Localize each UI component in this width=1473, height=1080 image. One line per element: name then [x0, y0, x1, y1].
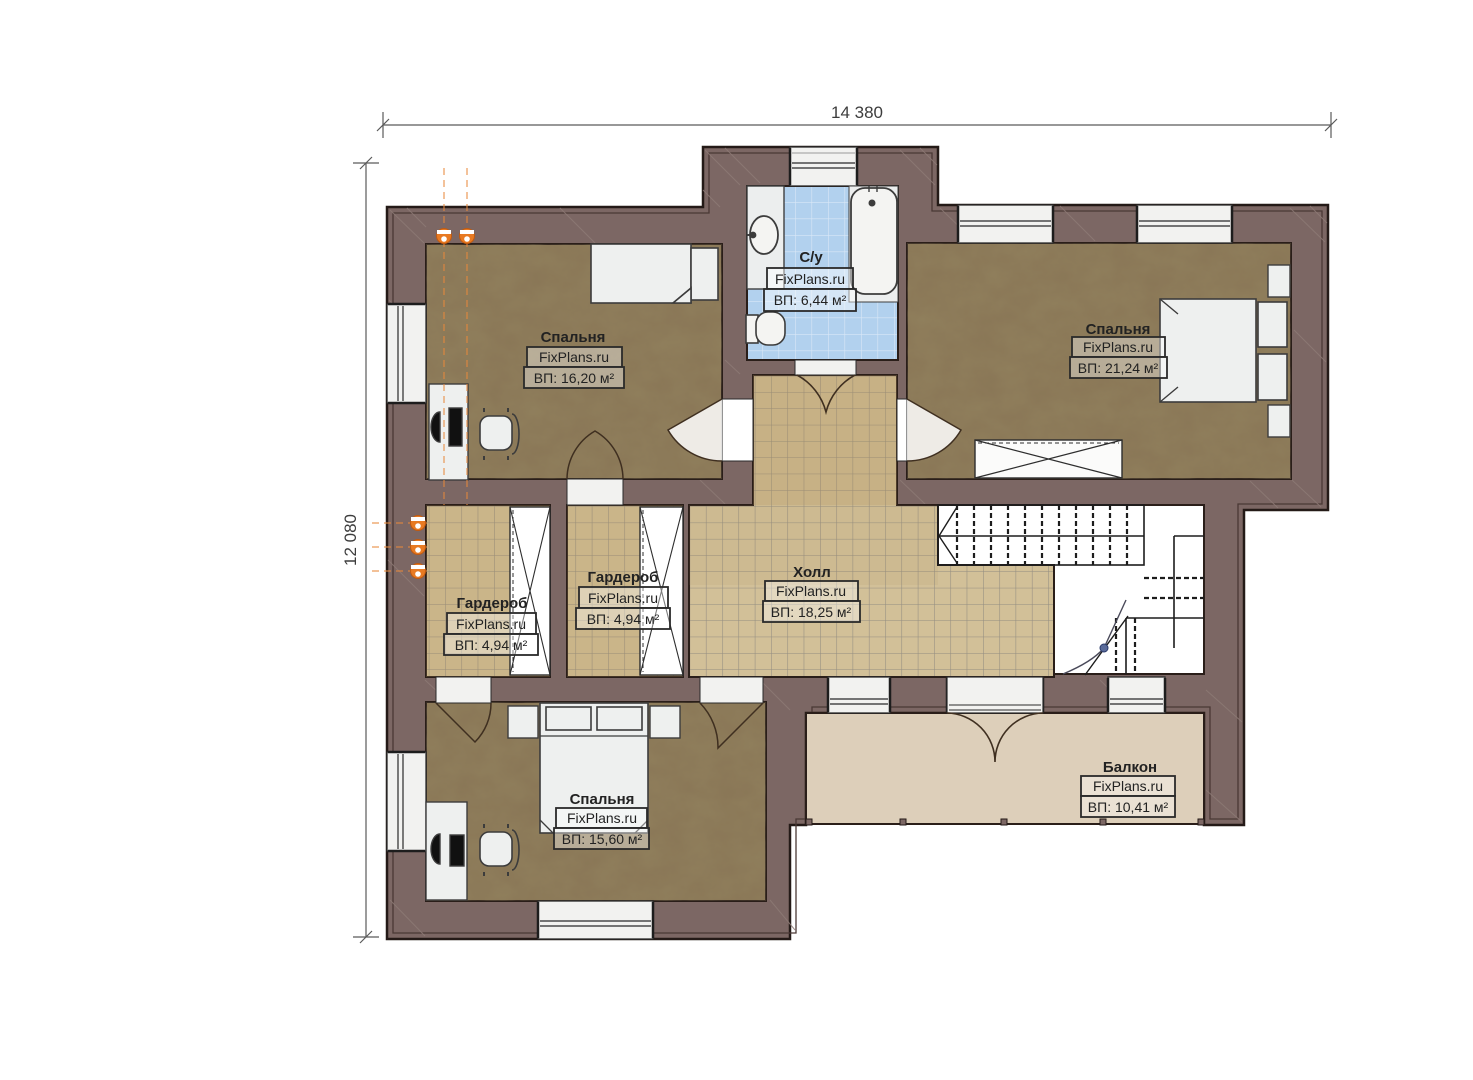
svg-text:Гардероб: Гардероб [588, 569, 659, 586]
svg-text:FixPlans.ru: FixPlans.ru [456, 616, 526, 632]
svg-text:FixPlans.ru: FixPlans.ru [1093, 778, 1163, 794]
svg-text:FixPlans.ru: FixPlans.ru [588, 590, 658, 606]
svg-text:Гардероб: Гардероб [457, 595, 528, 612]
svg-text:ВП: 4,94 м²: ВП: 4,94 м² [455, 637, 528, 653]
svg-text:ВП: 16,20 м²: ВП: 16,20 м² [534, 370, 615, 386]
svg-text:Холл: Холл [793, 564, 831, 581]
svg-text:14 380: 14 380 [831, 103, 883, 122]
svg-text:Балкон: Балкон [1103, 759, 1157, 776]
svg-text:FixPlans.ru: FixPlans.ru [775, 271, 845, 287]
svg-text:FixPlans.ru: FixPlans.ru [776, 583, 846, 599]
svg-text:ВП: 10,41 м²: ВП: 10,41 м² [1088, 799, 1169, 815]
svg-text:FixPlans.ru: FixPlans.ru [567, 810, 637, 826]
svg-text:FixPlans.ru: FixPlans.ru [1083, 339, 1153, 355]
svg-text:Спальня: Спальня [1086, 321, 1151, 338]
svg-text:С/у: С/у [799, 249, 823, 266]
svg-text:Спальня: Спальня [541, 329, 606, 346]
svg-text:ВП: 15,60 м²: ВП: 15,60 м² [562, 831, 643, 847]
svg-text:12 080: 12 080 [341, 514, 360, 566]
svg-text:ВП: 6,44 м²: ВП: 6,44 м² [774, 292, 847, 308]
svg-text:FixPlans.ru: FixPlans.ru [539, 349, 609, 365]
svg-text:ВП: 4,94 м²: ВП: 4,94 м² [587, 611, 660, 627]
svg-text:ВП: 18,25 м²: ВП: 18,25 м² [771, 604, 852, 620]
svg-text:ВП: 21,24 м²: ВП: 21,24 м² [1078, 360, 1159, 376]
svg-text:Спальня: Спальня [570, 791, 635, 808]
